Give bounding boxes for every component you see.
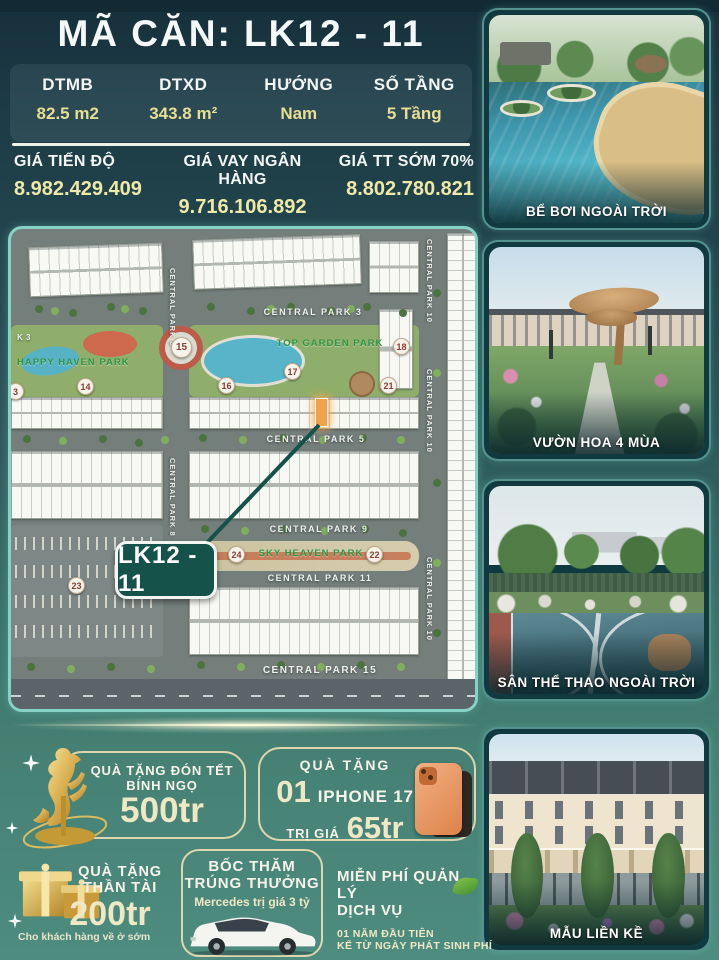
amenity-card-court: SÂN THỂ THAO NGOÀI TRỜI <box>482 479 711 701</box>
spec-value: 82.5 m2 <box>10 104 126 124</box>
map-marker: 17 <box>284 363 301 380</box>
promo-line: TRÚNG THƯỞNG <box>183 875 321 892</box>
promo-line: BỐC THĂM <box>183 858 321 875</box>
spec-sotang: SỐ TẦNG 5 Tầng <box>357 64 473 142</box>
street-label: CENTRAL PARK 15 <box>255 665 385 676</box>
master-plan-map: CENTRAL PARK 3 CENTRAL PARK 5 CENTRAL PA… <box>8 226 478 712</box>
promo-mercedes-box: BỐC THĂM TRÚNG THƯỞNG Mercedes trị giá 3… <box>181 849 323 957</box>
spec-label: DTXD <box>126 75 242 95</box>
building-column <box>447 233 478 681</box>
gazebo <box>349 371 375 397</box>
street-label: CENTRAL PARK 10 <box>425 239 434 319</box>
card-caption: MẪU LIỀN KỀ <box>484 926 709 941</box>
building-row <box>189 587 419 655</box>
price-vay-ngan-hang: GIÁ VAY NGÂN HÀNG 9.716.106.892 <box>165 153 320 219</box>
building-row <box>11 451 163 519</box>
street-label: CENTRAL PARK 3 <box>248 307 378 317</box>
iphone-icon <box>415 763 462 835</box>
price-tt-som: GIÁ TT SỚM 70% 8.802.780.821 <box>322 153 474 201</box>
promo-note: Cho khách hàng về ở sớm <box>18 931 148 943</box>
sparkle-icon <box>4 820 20 836</box>
sparkle-icon <box>20 752 42 774</box>
promo-title: QUÀ TẶNG <box>260 757 430 773</box>
page-title: MÃ CĂN: LK12 - 11 <box>0 13 482 55</box>
street-label: CENTRAL PARK 9 <box>254 524 384 534</box>
prices-row: GIÁ TIẾN ĐỘ 8.982.429.409 GIÁ VAY NGÂN H… <box>10 153 474 217</box>
parking-row <box>15 625 159 638</box>
map-marker: 15 <box>171 337 192 358</box>
card-caption: VƯỜN HOA 4 MÙA <box>484 435 709 450</box>
road-centerline <box>11 695 478 697</box>
spec-value: 343.8 m² <box>126 104 242 124</box>
price-label: GIÁ TT SỚM 70% <box>322 153 474 171</box>
spec-label: SỐ TẦNG <box>357 75 473 95</box>
promo-price-label: TRỊ GIÁ <box>286 826 339 841</box>
unit-callout: LK12 - 11 <box>115 541 217 599</box>
price-value: 8.802.780.821 <box>322 178 474 201</box>
townhouse-photo <box>489 734 704 945</box>
promo-qty: 01 <box>276 774 310 810</box>
price-value: 9.716.106.892 <box>165 196 320 219</box>
map-marker: 22 <box>366 546 383 563</box>
light-flare <box>10 716 480 734</box>
mercedes-car-icon <box>183 905 323 957</box>
price-tien-do: GIÁ TIẾN ĐỘ 8.982.429.409 <box>14 153 164 201</box>
promo-detail: KỂ TỪ NGÀY PHÁT SINH PHÍ <box>337 940 477 952</box>
pool-house <box>500 42 552 65</box>
price-label: GIÁ TIẾN ĐỘ <box>14 153 164 171</box>
price-value: 8.982.429.409 <box>14 178 164 201</box>
map-marker: 14 <box>77 378 94 395</box>
building-row <box>28 243 164 298</box>
leaf-icon <box>452 874 478 900</box>
park-label: SKY HEAVEN PARK <box>256 548 366 559</box>
spec-huong: HƯỚNG Nam <box>241 64 357 142</box>
street-label: CENTRAL PARK 8 <box>168 457 177 537</box>
street-label: CENTRAL PARK 8 <box>168 267 177 347</box>
iphone-camera <box>419 767 437 785</box>
street-label: CENTRAL PARK 10 <box>425 369 434 449</box>
building-row <box>192 234 362 290</box>
park-label: HAPPY HAVEN PARK <box>17 357 127 368</box>
spec-dtxd: DTXD 343.8 m² <box>126 64 242 142</box>
trees-light <box>11 229 19 237</box>
sparkle-icon <box>6 912 24 930</box>
building-row <box>189 451 419 519</box>
spec-dtmb: DTMB 82.5 m2 <box>10 64 126 142</box>
promo-thantai-lines: QUÀ TẶNG THẦN TÀI <box>70 864 170 896</box>
promo-detail: 01 NĂM ĐẦU TIÊN <box>337 928 477 940</box>
building-row <box>11 397 163 429</box>
promo-amount: 200tr <box>52 897 168 932</box>
street-label: CENTRAL PARK 10 <box>425 557 434 627</box>
real-estate-flyer: MÃ CĂN: LK12 - 11 DTMB 82.5 m2 DTXD 343.… <box>0 0 719 960</box>
spec-label: DTMB <box>10 75 126 95</box>
trees <box>489 515 704 577</box>
map-marker: 23 <box>68 577 85 594</box>
card-caption: SÂN THỂ THAO NGOÀI TRỜI <box>484 675 709 690</box>
price-label: GIÁ VAY NGÂN HÀNG <box>165 153 320 189</box>
map-marker: 18 <box>393 338 410 355</box>
promo-amount: 65tr <box>347 810 404 846</box>
street-label: K 3 <box>12 333 36 342</box>
spec-value: 5 Tầng <box>357 104 473 124</box>
card-caption: BỂ BƠI NGOÀI TRỜI <box>484 204 709 219</box>
promo-iphone-box: QUÀ TẶNG 01 IPHONE 17 TRỊ GIÁ 65tr <box>258 747 476 841</box>
park-label: TOP GARDEN PARK <box>275 338 385 349</box>
divider <box>12 143 470 146</box>
map-marker: 24 <box>228 546 245 563</box>
building-row <box>369 241 419 293</box>
amenity-card-townhouse: MẪU LIỀN KỀ <box>482 727 711 952</box>
map-marker: 16 <box>218 377 235 394</box>
amenity-card-garden: VƯỜN HOA 4 MÙA <box>482 240 711 461</box>
pool-island <box>500 100 543 117</box>
promo-line: THẦN TÀI <box>70 880 170 896</box>
specs-panel: DTMB 82.5 m2 DTXD 343.8 m² HƯỚNG Nam SỐ … <box>10 64 472 142</box>
mansard-roof <box>489 761 704 797</box>
promo-line: DỊCH VỤ <box>337 902 477 919</box>
promo-line: QUÀ TẶNG <box>70 864 170 880</box>
playground-blob <box>83 331 137 357</box>
amenity-card-pool: BỂ BƠI NGOÀI TRỜI <box>482 8 711 230</box>
spec-value: Nam <box>241 104 357 124</box>
building-row <box>189 397 419 429</box>
canopy-lower <box>586 309 638 326</box>
court-photo <box>489 486 704 694</box>
flower-strip <box>489 592 704 615</box>
spec-label: HƯỚNG <box>241 75 357 95</box>
lamp-post <box>648 326 652 355</box>
street-label: CENTRAL PARK 5 <box>251 434 381 444</box>
highlighted-unit <box>315 398 328 427</box>
street-label: CENTRAL PARK 11 <box>255 573 385 583</box>
map-marker: 21 <box>380 377 397 394</box>
promo-product: IPHONE 17 <box>318 787 414 807</box>
pool-photo <box>489 15 704 223</box>
garden-photo <box>489 247 704 454</box>
lamp-post <box>549 330 553 359</box>
